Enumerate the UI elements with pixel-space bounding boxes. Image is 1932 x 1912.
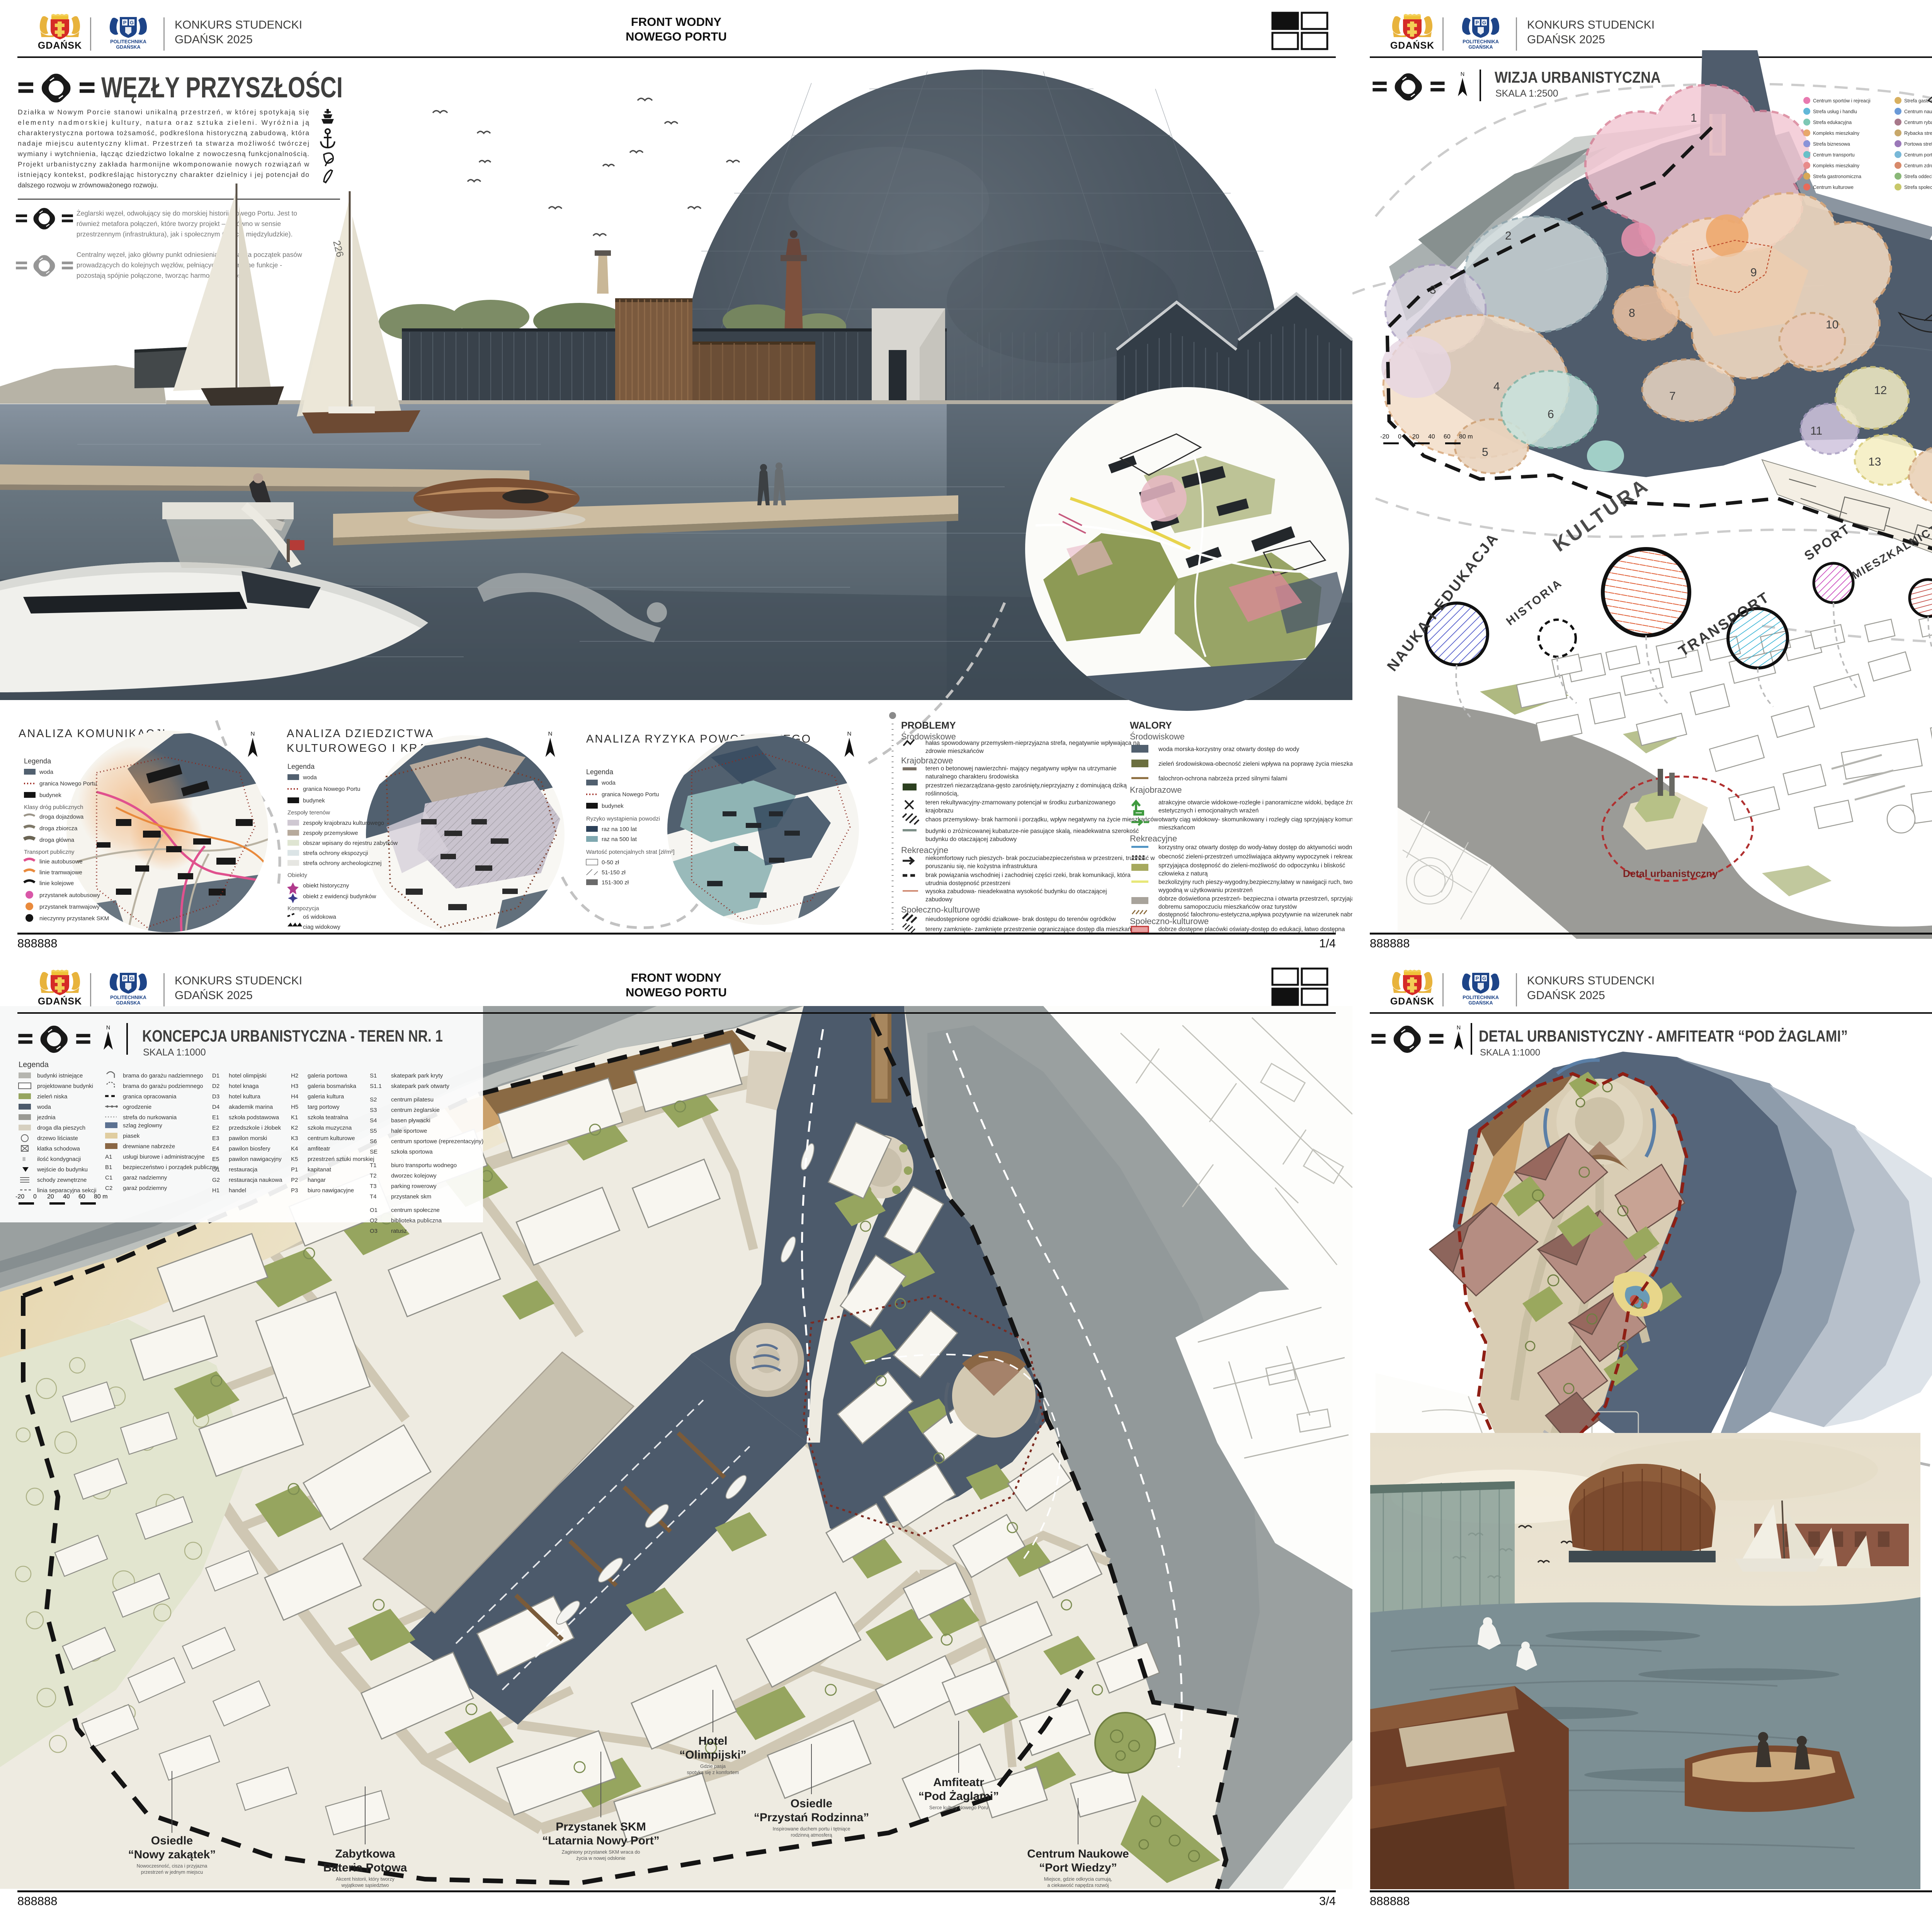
svg-text:Strefa oddechu i energii: Strefa oddechu i energii [1904,174,1932,179]
svg-text:K4: K4 [291,1146,298,1152]
svg-text:drewniane nabrzeże: drewniane nabrzeże [123,1143,175,1150]
svg-text:woda morska-korzystny oraz otw: woda morska-korzystny oraz otwarty dostę… [1158,746,1299,753]
svg-text:B1: B1 [105,1164,112,1171]
svg-text:S5: S5 [370,1128,377,1134]
svg-text:Osiedle: Osiedle [791,1797,832,1810]
svg-text:Legenda: Legenda [586,768,614,776]
svg-text:Centrum zdrowotno-rehabilitacy: Centrum zdrowotno-rehabilitacyjne [1904,163,1932,168]
svg-text:wysoka zabudowa- nieadekwatna: wysoka zabudowa- nieadekwatna wysokość b… [925,888,1107,895]
svg-text:SKALA 1:1000: SKALA 1:1000 [1480,1047,1540,1058]
svg-text:charakterystyczna portowa tożs: charakterystyczna portowa tożsamość, pod… [18,129,309,137]
svg-text:Społeczno-kulturowe: Społeczno-kulturowe [901,905,980,914]
svg-text:P1: P1 [291,1166,298,1173]
svg-text:P3: P3 [291,1187,298,1194]
svg-text:strefa do nurkowania: strefa do nurkowania [123,1114,177,1121]
svg-text:Strefa edukacyjna: Strefa edukacyjna [1813,120,1852,125]
svg-text:granica Nowego Portu: granica Nowego Portu [39,780,97,787]
svg-text:biuro nawigacyjne: biuro nawigacyjne [308,1187,354,1194]
svg-text:Centrum transportu: Centrum transportu [1813,152,1855,158]
svg-text:targ portowy: targ portowy [308,1104,340,1110]
svg-text:“Nowy zakątek”: “Nowy zakątek” [128,1848,216,1861]
svg-text:S1.1: S1.1 [370,1083,382,1089]
svg-text:woda: woda [601,780,616,786]
svg-text:Hotel: Hotel [699,1735,728,1747]
svg-text:szkoła muzyczna: szkoła muzyczna [308,1125,352,1131]
svg-text:ANALIZA DZIEDZICTWA: ANALIZA DZIEDZICTWA [287,727,434,740]
svg-text:H1: H1 [212,1187,219,1194]
svg-text:przystanek autobusowy: przystanek autobusowy [39,892,100,899]
svg-text:bezpieczeństwo i porządek publ: bezpieczeństwo i porządek publiczny [123,1164,218,1171]
svg-text:usługi biurowe i administracyj: usługi biurowe i administracyjne [123,1154,205,1160]
svg-text:Amfiteatr: Amfiteatr [933,1776,984,1789]
svg-text:KONKURS STUDENCKI: KONKURS STUDENCKI [1527,974,1655,987]
svg-text:handel: handel [229,1187,246,1194]
svg-text:poruszaniu się, nie kożystna i: poruszaniu się, nie kożystna infrastrukt… [925,863,1037,870]
svg-text:pawilon nawigacyjny: pawilon nawigacyjny [229,1156,282,1162]
svg-text:C2: C2 [105,1185,112,1191]
svg-text:ogrodzenie: ogrodzenie [123,1104,151,1110]
svg-text:Portowa strefa kultury: Portowa strefa kultury [1904,141,1932,147]
svg-text:Działka w Nowym Porcie stanowi: Działka w Nowym Porcie stanowi unikalną … [18,108,309,116]
svg-text:Centrum sportów i rejreacji: Centrum sportów i rejreacji [1813,98,1871,104]
svg-text:O1: O1 [370,1207,378,1213]
svg-text:Społeczno-kulturowe: Społeczno-kulturowe [1130,916,1209,926]
svg-text:prowadzących do kolejnych węzł: prowadzących do kolejnych węzłów, pełnią… [77,261,282,269]
svg-text:0: 0 [33,1193,37,1200]
svg-text:parking rowerowy: parking rowerowy [391,1183,437,1190]
svg-text:Krajobrazowe: Krajobrazowe [1130,785,1182,795]
svg-text:KONKURS STUDENCKI: KONKURS STUDENCKI [175,19,302,31]
svg-text:skatepark park kryty: skatepark park kryty [391,1072,443,1079]
svg-text:budynek: budynek [303,797,325,804]
svg-text:SKALA 1:1000: SKALA 1:1000 [143,1047,206,1058]
svg-text:wejście do budynku: wejście do budynku [37,1166,88,1173]
svg-text:888888: 888888 [1370,1894,1410,1908]
svg-text:NOWEGO PORTU: NOWEGO PORTU [626,986,727,999]
svg-text:A1: A1 [105,1154,112,1160]
svg-text:KONKURS STUDENCKI: KONKURS STUDENCKI [1527,19,1655,31]
svg-text:6: 6 [1548,408,1554,421]
svg-text:schody zewnętrzne: schody zewnętrzne [37,1177,87,1183]
svg-text:S6: S6 [370,1138,377,1145]
svg-text:20: 20 [47,1193,54,1200]
svg-text:SE: SE [370,1149,378,1155]
svg-text:D2: D2 [212,1083,219,1089]
svg-text:rodzinną atmosferą: rodzinną atmosferą [791,1832,832,1838]
svg-text:Inspirowane duchem portu i tęt: Inspirowane duchem portu i tętniące [773,1826,850,1832]
svg-text:S4: S4 [370,1117,377,1124]
svg-text:krajobrazu: krajobrazu [925,807,953,814]
svg-text:granica Nowego Portu: granica Nowego Portu [602,791,659,798]
svg-text:S3: S3 [370,1107,377,1113]
svg-text:Miejsce, gdzie odkrycia cumują: Miejsce, gdzie odkrycia cumują, [1044,1876,1112,1882]
svg-text:obiekt z ewidencji budynków: obiekt z ewidencji budynków [303,893,376,900]
svg-text:restauracja naukowa: restauracja naukowa [229,1177,282,1183]
svg-text:amfiteatr: amfiteatr [308,1146,330,1152]
svg-text:budynek: budynek [602,803,624,809]
svg-text:ratusz: ratusz [391,1228,407,1234]
svg-text:wygodną w użytkowaniu przestrz: wygodną w użytkowaniu przestrzeń [1158,887,1253,894]
svg-text:WIZJA URBANISTYCZNA: WIZJA URBANISTYCZNA [1495,68,1661,86]
svg-text:Centrum portowe: Centrum portowe [1904,152,1932,158]
svg-text:Zespoły terenów: Zespoły terenów [287,809,330,816]
svg-text:Strefa społeczno-rekreacyjna: Strefa społeczno-rekreacyjna [1904,185,1932,190]
svg-text:życia w nowej odsłonie: życia w nowej odsłonie [576,1856,625,1861]
svg-text:droga dojazdowa: droga dojazdowa [39,814,84,820]
svg-text:galeria portowa: galeria portowa [308,1072,347,1079]
svg-text:“Olimpijski”: “Olimpijski” [679,1749,746,1761]
svg-text:II: II [22,1156,26,1162]
svg-text:granica Nowego Portu: granica Nowego Portu [303,786,360,792]
svg-text:Legenda: Legenda [19,1061,49,1069]
svg-text:piasek: piasek [123,1133,140,1139]
svg-text:budynki o zróżnicowanej kubatu: budynki o zróżnicowanej kubaturze-nie pa… [925,828,1139,834]
svg-text:spotyka się z komfortem: spotyka się z komfortem [687,1770,739,1775]
svg-text:wymiany i wytchnienia, łącząc: wymiany i wytchnienia, łącząc dziedzictw… [17,150,309,158]
svg-text:D3: D3 [212,1093,219,1100]
svg-text:niekomfortowy ruch pieszych- b: niekomfortowy ruch pieszych- brak poczuc… [925,855,1155,862]
svg-text:K2: K2 [291,1125,298,1131]
svg-text:strefa ochrony archeologicznej: strefa ochrony archeologicznej [303,860,381,867]
svg-text:linie tramwajowe: linie tramwajowe [39,869,82,876]
svg-text:akademik marina: akademik marina [229,1104,273,1110]
svg-text:G2: G2 [212,1177,220,1183]
svg-text:zespoły przemysłowe: zespoły przemysłowe [303,830,358,836]
svg-text:Serce kultury Nowego Poru: Serce kultury Nowego Poru [929,1805,988,1810]
svg-text:linie kolejowe: linie kolejowe [39,880,74,887]
svg-text:H3: H3 [291,1083,298,1089]
svg-text:granica opracowania: granica opracowania [123,1093,177,1100]
svg-text:Centrum rybackie: Centrum rybackie [1904,120,1932,125]
svg-text:mieszkańcom: mieszkańcom [1158,824,1195,831]
svg-text:Żeglarski węzeł, odwołujący si: Żeglarski węzeł, odwołujący się do morsk… [77,209,297,217]
svg-text:Zabytkowa: Zabytkowa [335,1847,395,1860]
svg-text:Rybacka strefa portowa: Rybacka strefa portowa [1904,131,1932,136]
svg-text:zieleń środowiskowa-obecność z: zieleń środowiskowa-obecność zieleni wpł… [1158,761,1352,767]
svg-text:przestrzeń sztuki morskiej: przestrzeń sztuki morskiej [308,1156,374,1162]
svg-text:151-300 zł: 151-300 zł [602,879,629,886]
svg-text:SKALA 1:2500: SKALA 1:2500 [1495,88,1558,99]
svg-text:Projekt urbanistyczny zakłada: Projekt urbanistyczny zakłada harmonijne… [18,160,309,168]
svg-text:galeria kultura: galeria kultura [308,1093,344,1100]
svg-text:Środowiskowe: Środowiskowe [1130,732,1185,741]
svg-text:woda: woda [39,769,54,775]
svg-text:SPORT: SPORT [1802,521,1854,564]
svg-text:40: 40 [63,1193,70,1200]
svg-text:elementy nadmorskiej kultury,: elementy nadmorskiej kultury, natura ora… [18,119,309,126]
svg-text:centrum sportowe (reprezentacy: centrum sportowe (reprezentacyjny) [391,1138,483,1145]
svg-text:otwarty ciąg widokowy- skomuni: otwarty ciąg widokowy- skomunikowany i r… [1158,816,1352,823]
svg-text:P2: P2 [291,1177,298,1183]
svg-text:garaż nadziemny: garaż nadziemny [123,1174,167,1181]
svg-text:NOWEGO PORTU: NOWEGO PORTU [626,30,727,43]
svg-text:T2: T2 [370,1173,377,1179]
svg-text:Centrum naukowo-badawcze: Centrum naukowo-badawcze [1904,109,1932,114]
svg-text:K1: K1 [291,1114,298,1121]
svg-text:D4: D4 [212,1104,219,1110]
svg-text:pawilon morski: pawilon morski [229,1135,267,1142]
svg-text:zespoły krajobrazu kulturowego: zespoły krajobrazu kulturowego [303,820,384,826]
svg-text:centrum społeczne: centrum społeczne [391,1207,440,1213]
svg-text:atrakcyjne otwarcie widokowe-r: atrakcyjne otwarcie widokowe-rozległe i … [1158,799,1352,806]
svg-text:szkoła sportowa: szkoła sportowa [391,1149,433,1155]
svg-text:DETAL URBANISTYCZNY - AMFITEAT: DETAL URBANISTYCZNY - AMFITEATR “POD ŻAG… [1479,1027,1848,1045]
svg-text:basen pływacki: basen pływacki [391,1117,430,1124]
svg-text:linie autobusowe: linie autobusowe [39,858,83,865]
svg-text:przestrzeń niezarządzana-gęsto: przestrzeń niezarządzana-gęsto zarośnięt… [925,782,1127,789]
svg-text:O2: O2 [370,1217,378,1224]
svg-text:E2: E2 [212,1125,219,1131]
svg-text:dalszego rozwoju w zrównoważo: dalszego rozwoju w zrównoważonego rozwoj… [18,181,158,189]
svg-text:KULTURA: KULTURA [1549,474,1653,556]
svg-text:S1: S1 [370,1072,377,1079]
svg-text:20: 20 [1412,433,1419,440]
svg-text:E1: E1 [212,1114,219,1121]
svg-text:Transport publiczny: Transport publiczny [24,849,75,855]
svg-text:-20: -20 [15,1193,24,1200]
svg-text:dobrze doświetlona przestrzeń-: dobrze doświetlona przestrzeń- bezpieczn… [1158,896,1352,902]
svg-text:-20: -20 [1380,433,1389,440]
svg-text:korzystny oraz otwarty dostęp: korzystny oraz otwarty dostęp do wody-ła… [1158,844,1352,851]
svg-text:centrum pilatesu: centrum pilatesu [391,1096,434,1103]
svg-text:pawilon biosfery: pawilon biosfery [229,1146,270,1152]
svg-text:ilość kondygnacji: ilość kondygnacji [37,1156,81,1162]
svg-text:888888: 888888 [17,936,57,950]
svg-text:szlag żeglowny: szlag żeglowny [123,1122,162,1129]
svg-text:Klasy dróg publicznych: Klasy dróg publicznych [24,804,83,811]
svg-text:Rekreacyjne: Rekreacyjne [901,845,948,855]
svg-text:roślinnością,: roślinnością, [925,790,959,797]
svg-text:Zaginiony przystanek SKM wraca: Zaginiony przystanek SKM wraca do [562,1849,640,1855]
svg-text:projektowane budynki: projektowane budynki [37,1083,93,1089]
svg-text:H4: H4 [291,1093,298,1100]
svg-text:Bateria Potowa: Bateria Potowa [323,1861,407,1874]
svg-text:obszar wpisany do rejestru zab: obszar wpisany do rejestru zabytków [303,840,398,846]
svg-text:E5: E5 [212,1156,219,1162]
svg-text:7: 7 [1669,390,1676,403]
svg-text:2: 2 [1505,229,1512,242]
svg-text:Kompleks mieszkalny: Kompleks mieszkalny [1813,163,1860,168]
svg-text:falochron-ochrona nabrzeża prz: falochron-ochrona nabrzeża przed silnymi… [1158,775,1287,782]
svg-text:Akcent historii, który tworzy: Akcent historii, który tworzy [336,1876,395,1882]
svg-text:galeria bosmańska: galeria bosmańska [308,1083,357,1089]
svg-text:raz na 100 lat: raz na 100 lat [602,826,637,833]
svg-text:raz na 500 lat: raz na 500 lat [602,836,637,843]
svg-text:budynek: budynek [39,792,61,799]
svg-text:3: 3 [1430,284,1436,296]
svg-text:klatka schodowa: klatka schodowa [37,1146,80,1152]
svg-text:Obiekty: Obiekty [287,872,307,879]
svg-text:10: 10 [1826,318,1838,331]
svg-text:Krajobrazowe: Krajobrazowe [901,756,953,765]
svg-text:Kompozycja: Kompozycja [287,905,319,912]
svg-text:nadaje miejscu autentyczny kli: nadaje miejscu autentyczny klimat. Przes… [18,139,309,147]
svg-text:Wartość potencjalnych strat [z: Wartość potencjalnych strat [zł/m²] [586,849,675,855]
svg-text:GDAŃSK 2025: GDAŃSK 2025 [1527,33,1605,46]
svg-text:Legenda: Legenda [24,757,51,765]
svg-text:dobremu samopoczuciu mieszkańc: dobremu samopoczuciu mieszkańców oraz tu… [1158,904,1297,910]
svg-text:nieczynny przystanek SKM: nieczynny przystanek SKM [39,915,109,922]
svg-text:skatepark park otwarty: skatepark park otwarty [391,1083,449,1089]
svg-text:40: 40 [1428,433,1435,440]
svg-text:biblioteka publiczna: biblioteka publiczna [391,1217,442,1224]
svg-text:zdrowie mieszkańców: zdrowie mieszkańców [925,748,984,755]
svg-text:1/4: 1/4 [1319,936,1336,950]
svg-text:sprzyjająca dostępność do ziel: sprzyjająca dostępność do zieleni-możliw… [1158,862,1345,869]
svg-text:ciag widokowy: ciag widokowy [303,924,340,930]
svg-text:utrudnia dostępność przestrzen: utrudnia dostępność przestrzeni [925,880,1010,887]
svg-text:WALORY: WALORY [1130,720,1172,731]
svg-text:teren o betonowej nawierzchni-: teren o betonowej nawierzchni- mający ne… [925,765,1117,772]
svg-text:K3: K3 [291,1135,298,1142]
svg-text:naturalnego charakteru środowi: naturalnego charakteru środowiska [925,773,1019,780]
svg-text:kapitanat: kapitanat [308,1166,332,1173]
svg-text:0-50 zł: 0-50 zł [602,859,619,866]
svg-text:droga główna: droga główna [39,837,75,843]
svg-text:garaż podziemny: garaż podziemny [123,1185,167,1191]
svg-text:teren rekultywacyjny-zmarnowan: teren rekultywacyjny-zmarnowany potencja… [925,799,1116,806]
svg-text:Legenda: Legenda [287,763,315,770]
svg-text:T3: T3 [370,1183,377,1190]
svg-text:linia separacyjna sekcji: linia separacyjna sekcji [37,1187,96,1194]
svg-text:KONCEPCJA URBANISTYCZNA - TERE: KONCEPCJA URBANISTYCZNA - TEREN NR. 1 [142,1027,443,1045]
svg-text:przestrzennym (infrastruktura): przestrzennym (infrastruktura), jak i sp… [77,230,293,238]
svg-text:dworzec kolejowy: dworzec kolejowy [391,1173,437,1179]
svg-text:C1: C1 [105,1174,112,1181]
svg-text:1: 1 [1690,112,1697,124]
svg-text:estetycznych i emocjonalnych w: estetycznych i emocjonalnych wrażeń [1158,807,1259,814]
svg-text:zabudowy: zabudowy [925,896,952,903]
svg-text:D1: D1 [212,1072,219,1079]
svg-text:H5: H5 [291,1104,298,1110]
svg-text:51-150 zł: 51-150 zł [602,869,626,876]
svg-text:Rekreacyjne: Rekreacyjne [1130,834,1177,843]
svg-text:oś widokowa: oś widokowa [303,914,337,920]
svg-text:8: 8 [1629,307,1635,320]
svg-text:GDAŃSK 2025: GDAŃSK 2025 [175,33,253,46]
svg-text:obecność zieleni-przestrzeń um: obecność zieleni-przestrzeń umożliwiając… [1158,853,1352,860]
svg-text:szkoła podstawowa: szkoła podstawowa [229,1114,279,1121]
svg-text:droga zbiorcza: droga zbiorcza [39,825,78,832]
svg-text:T1: T1 [370,1162,377,1169]
svg-text:PROBLEMY: PROBLEMY [901,720,956,731]
svg-text:Centrum kulturowe: Centrum kulturowe [1813,185,1854,190]
svg-text:hotel knaga: hotel knaga [229,1083,259,1089]
svg-text:również metafora połączeń, któ: również metafora połączeń, które tworzy … [77,220,281,228]
svg-text:G1: G1 [212,1166,220,1173]
svg-text:człowieka z naturą: człowieka z naturą [1158,870,1208,877]
svg-text:3/4: 3/4 [1319,1894,1336,1908]
svg-text:budynki istniejące: budynki istniejące [37,1072,83,1079]
svg-text:hotel kultura: hotel kultura [229,1093,260,1100]
svg-text:4: 4 [1493,380,1500,393]
svg-text:Osiedle: Osiedle [151,1834,193,1847]
svg-text:Przystanek SKM: Przystanek SKM [556,1820,646,1833]
svg-text:H2: H2 [291,1072,298,1079]
svg-text:centrum kulturowe: centrum kulturowe [308,1135,355,1142]
svg-text:“Port Wiedzy”: “Port Wiedzy” [1039,1861,1117,1874]
svg-text:nieudostępnione ogródki działk: nieudostępnione ogródki działkowe- brak … [925,916,1116,923]
svg-text:80 m: 80 m [1459,433,1473,440]
svg-text:bezkolizyjny ruch pieszy-wygod: bezkolizyjny ruch pieszy-wygodny,bezpiec… [1158,879,1352,885]
svg-text:E3: E3 [212,1135,219,1142]
svg-text:wyjątkowe sąsiedztwo: wyjątkowe sąsiedztwo [341,1883,389,1888]
svg-text:woda: woda [303,774,317,781]
svg-text:FRONT WODNY: FRONT WODNY [631,971,722,984]
svg-text:GDAŃSK 2025: GDAŃSK 2025 [175,989,253,1002]
svg-text:chaos przemysłowy- brak harmon: chaos przemysłowy- brak harmonii i porzą… [925,816,1158,823]
svg-text:Kompleks mieszkalny: Kompleks mieszkalny [1813,131,1860,136]
svg-text:Nowoczesność, cisza i przyjazn: Nowoczesność, cisza i przyjazna [137,1863,207,1869]
svg-text:Centralny węzeł, jako główny p: Centralny węzeł, jako główny punkt odnie… [77,251,302,258]
svg-text:strefa ochrony ekspozycji: strefa ochrony ekspozycji [303,850,368,857]
svg-text:0: 0 [1398,433,1401,440]
svg-text:brama do garażu podziemnego: brama do garażu podziemnego [123,1083,203,1089]
svg-text:Centrum Naukowe: Centrum Naukowe [1027,1847,1129,1860]
svg-text:“Latarnia Nowy Port”: “Latarnia Nowy Port” [542,1834,659,1847]
svg-text:888888: 888888 [1370,936,1410,950]
svg-text:60: 60 [1444,433,1451,440]
svg-text:80 m: 80 m [94,1193,108,1200]
svg-text:biuro transportu wodnego: biuro transportu wodnego [391,1162,457,1169]
svg-text:O3: O3 [370,1228,378,1234]
svg-text:888888: 888888 [17,1894,57,1908]
svg-text:drzewo liściaste: drzewo liściaste [37,1135,78,1142]
svg-text:9: 9 [1750,266,1757,279]
svg-text:12: 12 [1874,384,1887,397]
svg-text:obiekt historyczny: obiekt historyczny [303,882,349,889]
svg-text:Gdzie pasja: Gdzie pasja [700,1764,726,1769]
svg-text:KONKURS STUDENCKI: KONKURS STUDENCKI [175,974,302,987]
svg-text:E4: E4 [212,1146,219,1152]
svg-text:13: 13 [1868,455,1881,468]
svg-text:przestrzeń w jednym miejscu: przestrzeń w jednym miejscu [141,1870,203,1875]
svg-text:woda: woda [37,1104,51,1110]
svg-text:budynku do otaczającej zabudow: budynku do otaczającej zabudowy [925,836,1017,843]
svg-text:11: 11 [1810,425,1822,437]
svg-text:GDAŃSK 2025: GDAŃSK 2025 [1527,989,1605,1002]
svg-text:60: 60 [78,1193,85,1200]
svg-text:hale sportowe: hale sportowe [391,1128,427,1134]
svg-text:S2: S2 [370,1096,377,1103]
svg-text:5: 5 [1482,446,1488,459]
svg-text:Ryzyko wystąpienia powodzi: Ryzyko wystąpienia powodzi [586,816,660,822]
svg-text:Strefa biznesowa: Strefa biznesowa [1813,141,1850,147]
svg-text:droga dla pieszych: droga dla pieszych [37,1125,85,1131]
svg-text:“Pod Żaglami”: “Pod Żaglami” [918,1790,999,1803]
svg-text:szkoła teatralna: szkoła teatralna [308,1114,349,1121]
svg-text:T4: T4 [370,1193,377,1200]
svg-text:przystanek tramwajowy: przystanek tramwajowy [39,904,100,910]
svg-text:a ciekawość napędza rozwój: a ciekawość napędza rozwój [1047,1883,1109,1888]
svg-text:Strefa gastronomiczna: Strefa gastronomiczna [1813,174,1861,179]
svg-text:hotel olimpijski: hotel olimpijski [229,1072,267,1079]
svg-text:hałas spowodowany przemysłem-n: hałas spowodowany przemysłem-nieprzyjazn… [925,740,1140,746]
svg-text:Strefa usług i handlu: Strefa usług i handlu [1813,109,1857,114]
svg-text:WĘZŁY PRZYSZŁOŚCI: WĘZŁY PRZYSZŁOŚCI [101,71,343,104]
svg-text:tereny zamknięte- zamknięte pr: tereny zamknięte- zamknięte przestrzenie… [925,926,1142,933]
svg-text:istniejący kontekst, podkreśla: istniejący kontekst, podkreślając histor… [18,171,309,178]
svg-text:zieleń niska: zieleń niska [37,1093,68,1100]
svg-text:Detal urbanistyczny: Detal urbanistyczny [1623,868,1718,879]
svg-text:brak powiązania wschodniej i z: brak powiązania wschodniej i zachodniej … [925,872,1131,879]
svg-text:K5: K5 [291,1156,298,1162]
svg-text:centrum żeglarskie: centrum żeglarskie [391,1107,440,1113]
svg-text:hangar: hangar [308,1177,326,1183]
svg-text:FRONT WODNY: FRONT WODNY [631,15,722,29]
svg-text:restauracja: restauracja [229,1166,258,1173]
svg-text:dobrze dostępne placówki oświa: dobrze dostępne placówki oświaty-dostęp … [1158,926,1345,933]
